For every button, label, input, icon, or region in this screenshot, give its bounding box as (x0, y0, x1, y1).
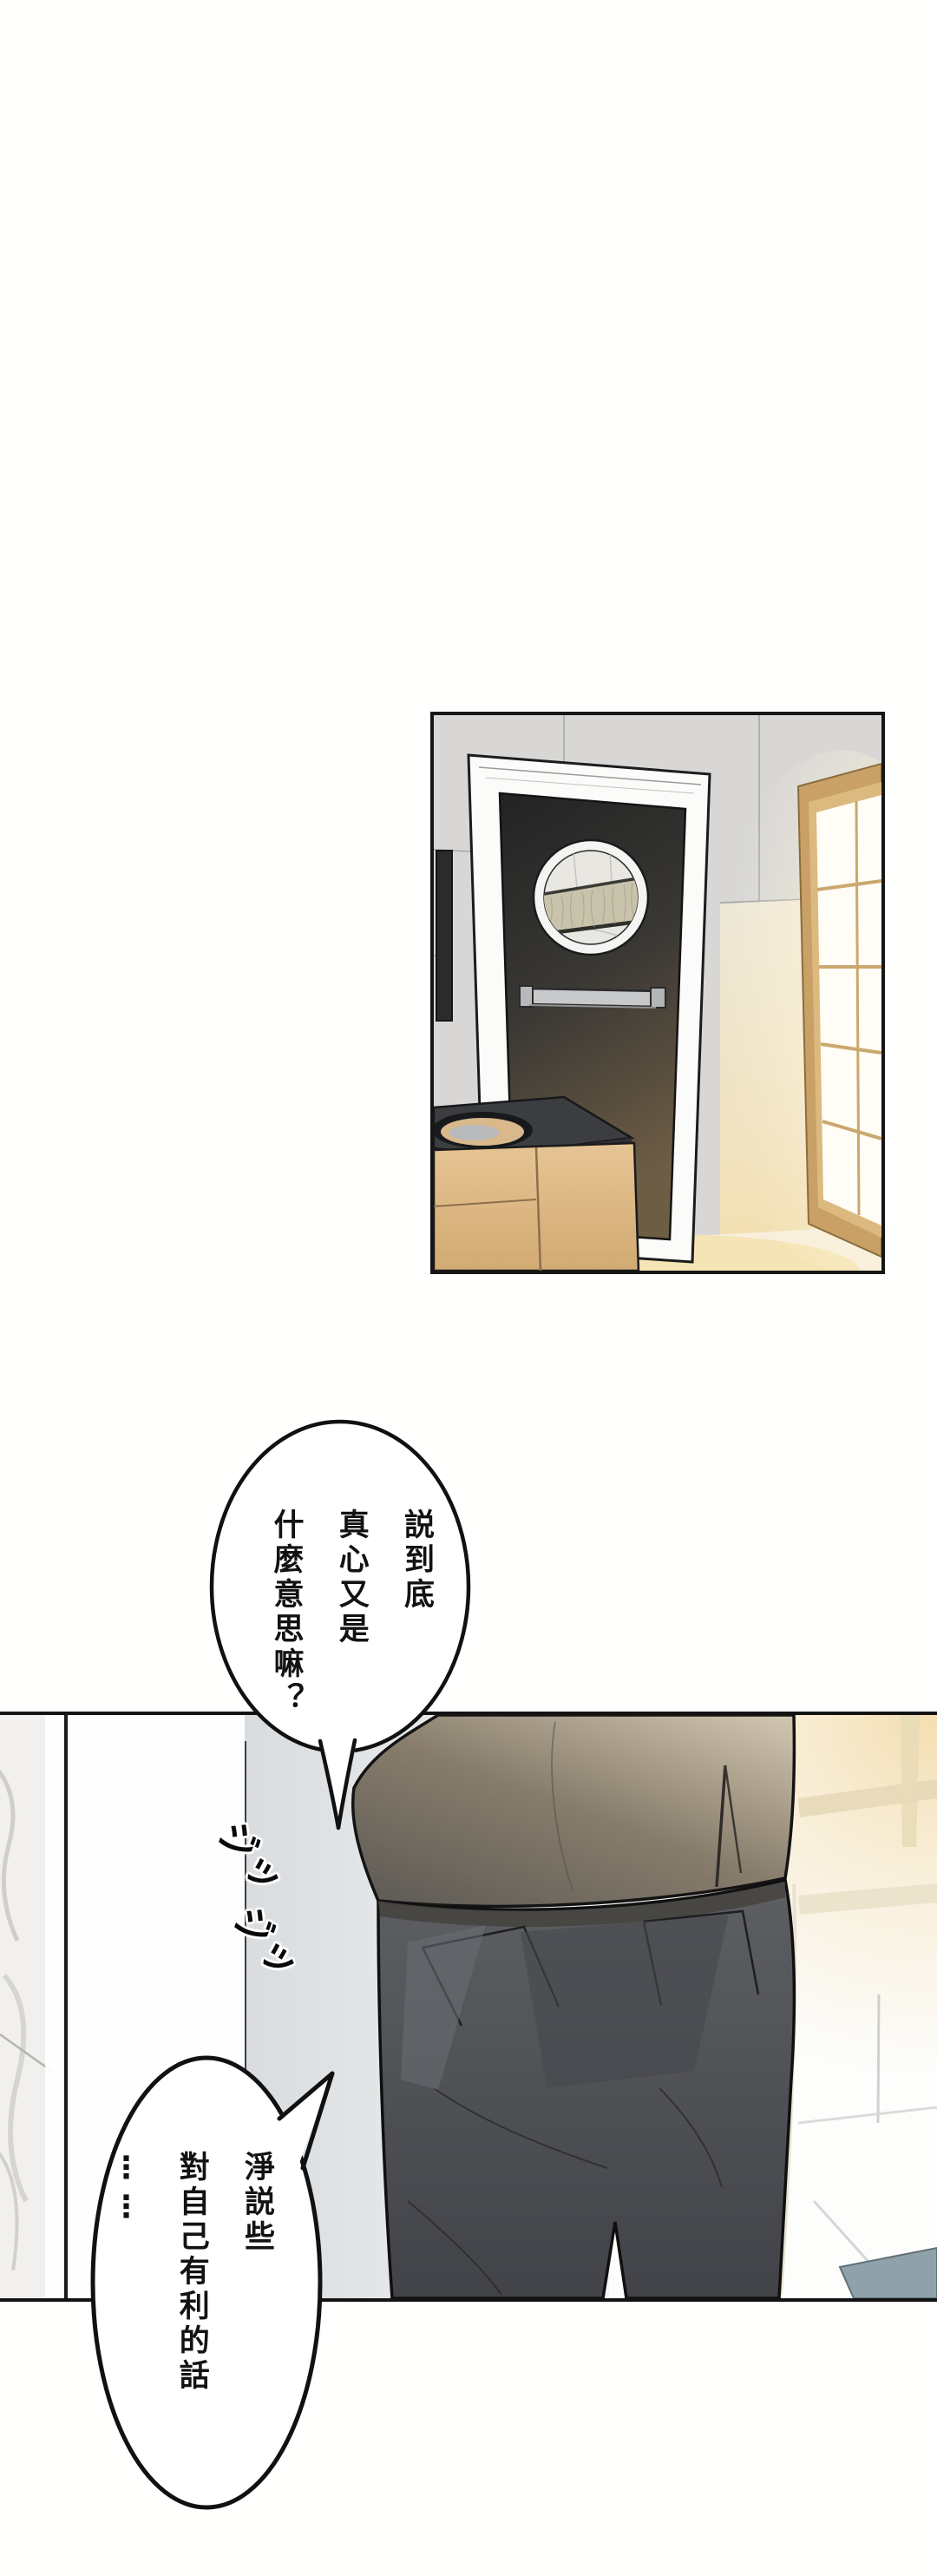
bubble-1-line-2: 真心又是 (318, 1508, 383, 1734)
bubble-1-line-3: 什麼意思嘛？ (252, 1508, 318, 1734)
marble-wall (0, 1715, 68, 2298)
speech-bubble-1-text: 説到底 真心又是 什麼意思嘛？ (252, 1508, 449, 1734)
bubble-2-line-1: 淨説些 (224, 2151, 289, 2463)
bubble-1-line-1: 説到底 (383, 1508, 449, 1734)
sink-highlight (449, 1125, 499, 1140)
porthole-window (534, 840, 648, 955)
bubble-2-line-2: 對自己有利的話⋮⋮ (93, 2151, 224, 2463)
window-panes (816, 795, 881, 1226)
panel-bathroom-door (430, 712, 885, 1274)
sink-counter (434, 1097, 639, 1271)
speech-bubble-2-text: 淨説些 對自己有利的話⋮⋮ (159, 2151, 289, 2463)
mirror-strip (436, 851, 452, 1021)
comic-page: ジッ ジッ 説到底 真心又是 什麼意思嘛？ 淨説些 對自己有利的話⋮⋮ (0, 0, 937, 2576)
bathroom-door-art (434, 715, 881, 1271)
